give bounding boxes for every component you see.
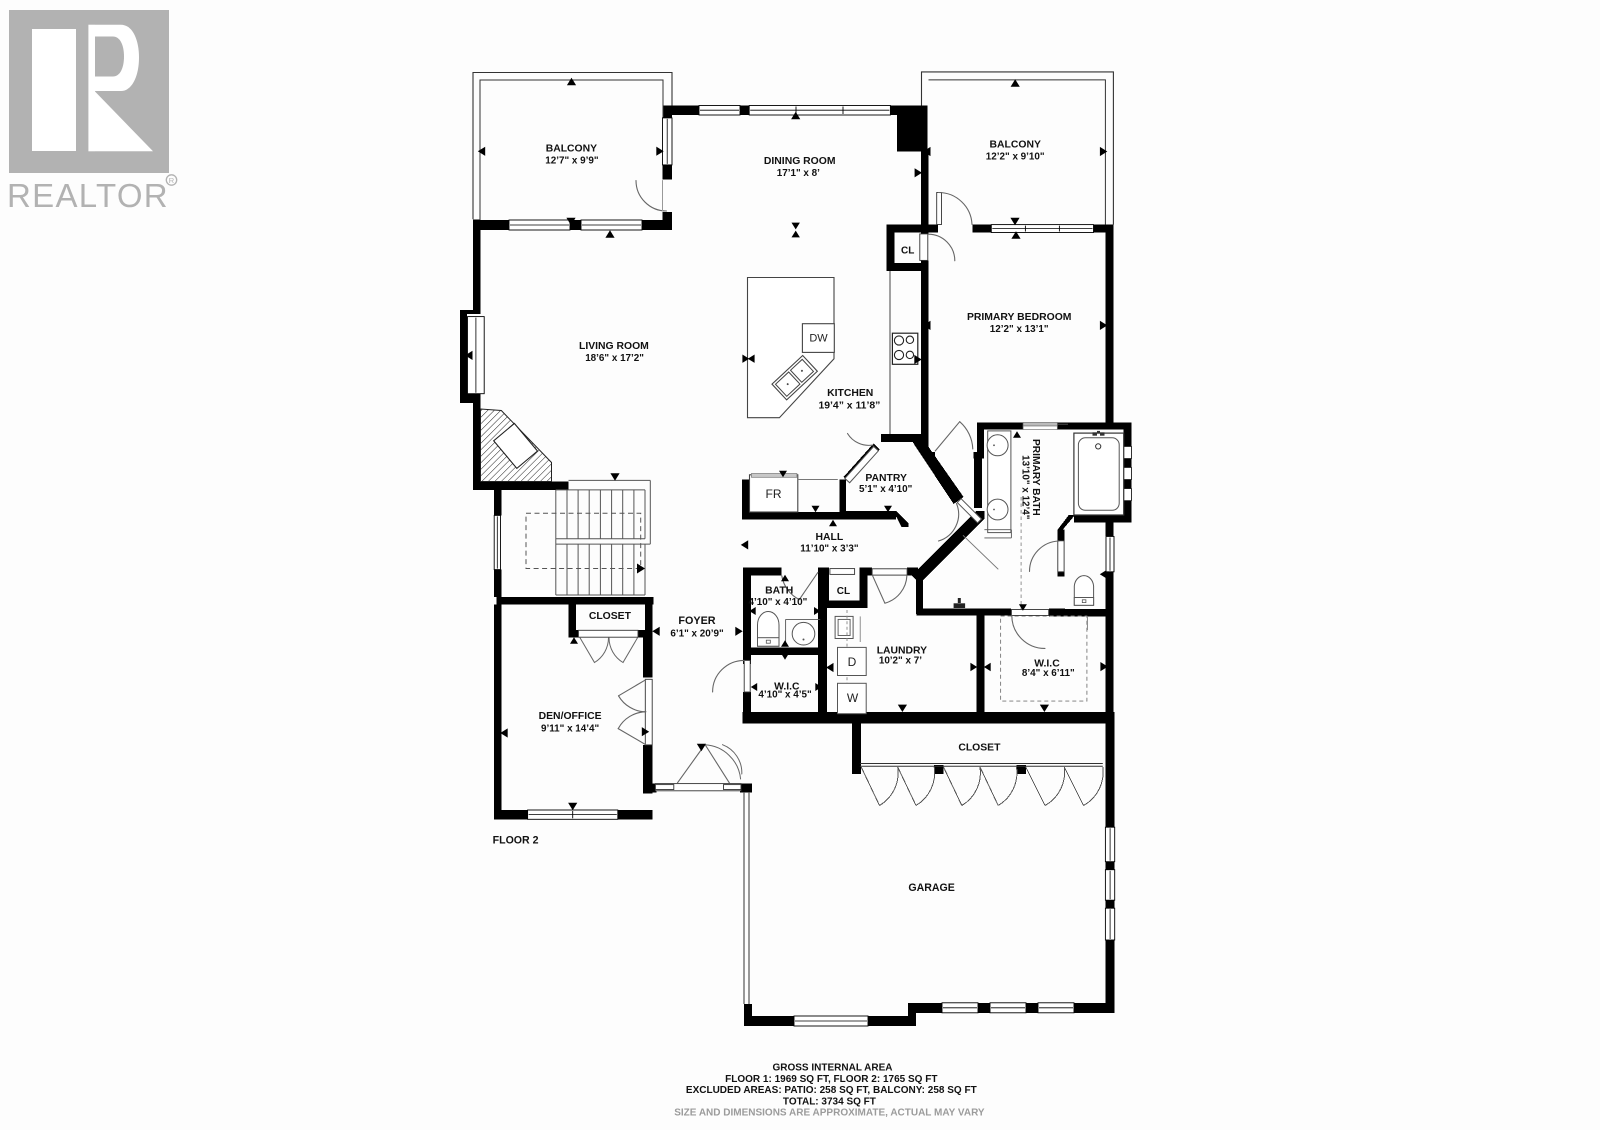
svg-text:8’4" x 6’11": 8’4" x 6’11" xyxy=(1022,668,1075,679)
svg-text:SIZE AND DIMENSIONS ARE APPROX: SIZE AND DIMENSIONS ARE APPROXIMATE, ACT… xyxy=(674,1107,985,1118)
svg-text:18’6" x 17’2": 18’6" x 17’2" xyxy=(585,353,644,364)
svg-text:PRIMARY BEDROOM: PRIMARY BEDROOM xyxy=(967,312,1072,323)
svg-text:9’11" x 14’4": 9’11" x 14’4" xyxy=(541,724,600,735)
svg-text:12’2" x 9’10": 12’2" x 9’10" xyxy=(986,152,1045,163)
svg-text:FOYER: FOYER xyxy=(678,615,715,627)
svg-text:EXCLUDED AREAS: PATIO: 258 SQ: EXCLUDED AREAS: PATIO: 258 SQ FT, BALCON… xyxy=(686,1085,977,1096)
svg-text:DEN/OFFICE: DEN/OFFICE xyxy=(539,711,602,722)
svg-text:GARAGE: GARAGE xyxy=(908,882,955,894)
svg-text:REALTOR: REALTOR xyxy=(7,177,169,214)
svg-text:BALCONY: BALCONY xyxy=(990,140,1041,151)
svg-text:BALCONY: BALCONY xyxy=(546,144,597,155)
svg-text:5’1" x 4’10": 5’1" x 4’10" xyxy=(859,484,913,495)
svg-text:HALL: HALL xyxy=(816,532,844,543)
svg-text:PANTRY: PANTRY xyxy=(865,473,907,484)
svg-text:FLOOR 2: FLOOR 2 xyxy=(493,835,539,847)
svg-text:CL: CL xyxy=(837,586,850,597)
svg-text:GROSS INTERNAL AREA: GROSS INTERNAL AREA xyxy=(772,1063,892,1074)
svg-text:FR: FR xyxy=(766,487,782,501)
svg-text:DINING ROOM: DINING ROOM xyxy=(764,156,836,167)
svg-text:17’1" x 8’: 17’1" x 8’ xyxy=(777,168,820,179)
svg-text:FLOOR 1: 1969 SQ FT, FLOOR 2:: FLOOR 1: 1969 SQ FT, FLOOR 2: 1765 SQ FT xyxy=(725,1074,937,1085)
svg-text:CLOSET: CLOSET xyxy=(589,611,632,622)
svg-text:DW: DW xyxy=(809,333,828,345)
svg-text:12’2" x 13’1": 12’2" x 13’1" xyxy=(990,324,1049,335)
svg-text:12’7" x 9’9": 12’7" x 9’9" xyxy=(545,156,599,167)
svg-text:BATH: BATH xyxy=(765,586,793,597)
svg-text:4’10" x 4’5": 4’10" x 4’5" xyxy=(758,690,812,701)
svg-text:R: R xyxy=(169,176,175,185)
svg-text:19’4” x 11’8”: 19’4” x 11’8” xyxy=(818,401,880,412)
svg-text:CL: CL xyxy=(901,246,914,257)
svg-text:11’10" x 3’3": 11’10" x 3’3" xyxy=(800,544,859,555)
svg-text:TOTAL: 3734 SQ FT: TOTAL: 3734 SQ FT xyxy=(783,1096,876,1107)
svg-text:W: W xyxy=(847,691,859,705)
svg-text:PRIMARY BATH: PRIMARY BATH xyxy=(1030,439,1041,516)
svg-text:KITCHEN: KITCHEN xyxy=(827,388,873,399)
svg-text:4’10" x 4’10": 4’10" x 4’10" xyxy=(749,597,808,608)
svg-text:CLOSET: CLOSET xyxy=(958,743,1001,754)
svg-text:13’10" x 12’4": 13’10" x 12’4" xyxy=(1020,455,1031,520)
svg-text:6’1" x 20’9": 6’1" x 20’9" xyxy=(670,629,724,640)
svg-text:LIVING ROOM: LIVING ROOM xyxy=(579,341,649,352)
svg-text:D: D xyxy=(848,655,857,669)
svg-text:10’2" x 7’: 10’2" x 7’ xyxy=(879,656,922,667)
